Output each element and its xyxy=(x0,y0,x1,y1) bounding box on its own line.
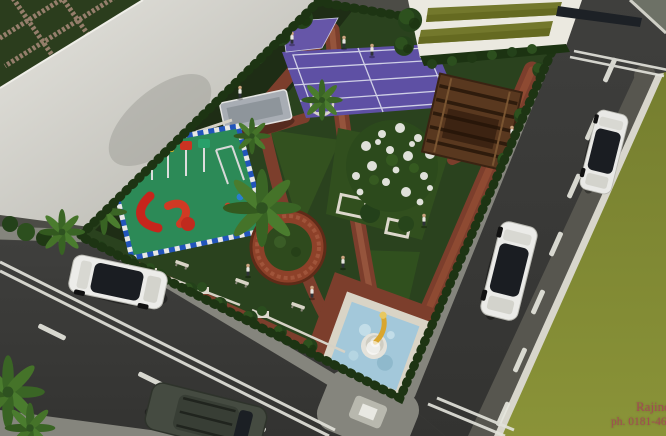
watermark-phone: ph. 0181-4600 xyxy=(611,416,666,428)
white-flowering-tree xyxy=(346,120,438,212)
palm-tree xyxy=(39,209,85,255)
palm-tree-central xyxy=(223,169,301,247)
render-image: Rajindera A ph. 0181-4600 xyxy=(0,0,666,436)
tree xyxy=(398,8,422,32)
tree xyxy=(394,36,414,56)
watermark-name: Rajindera A xyxy=(636,399,666,415)
garden-shrub xyxy=(398,216,414,232)
scene-svg xyxy=(0,0,666,436)
palm-tree xyxy=(234,118,271,155)
palm-tree xyxy=(301,79,342,120)
